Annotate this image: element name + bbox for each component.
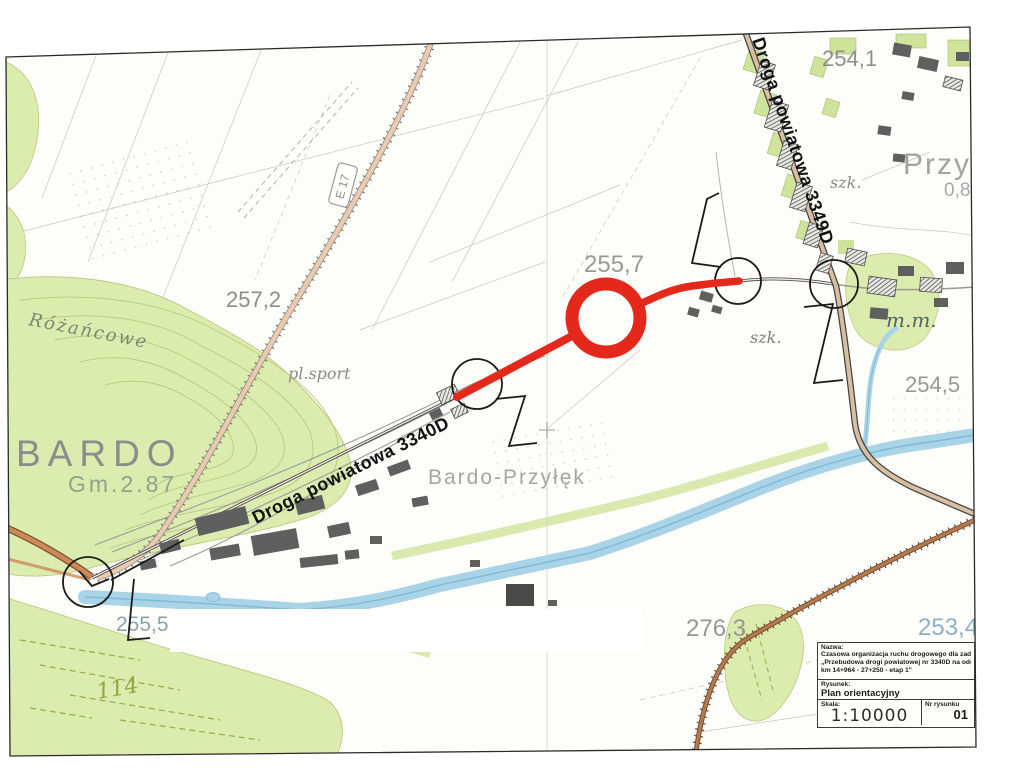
label-elevation-255-7: 255,7 xyxy=(584,251,644,278)
green-mm xyxy=(846,254,939,350)
scale-value: 1:10000 xyxy=(821,706,918,726)
drawing-label: Rysunek: xyxy=(821,681,971,688)
drawing-number-cell: Nr rysunku 01 xyxy=(922,700,974,725)
label-elevation-276-3: 276,3 xyxy=(686,615,746,642)
white-patch xyxy=(170,609,643,652)
name-label: Nazwa: xyxy=(821,644,971,651)
title-block-drawing-section: Rysunek: Plan orientacyjny xyxy=(818,680,974,700)
title-block-name-section: Nazwa: Czasowa organizacja ruchu drogowe… xyxy=(818,643,974,680)
label-elevation-254-1: 254,1 xyxy=(822,46,877,71)
drawing-title: Plan orientacyjny xyxy=(821,688,971,699)
label-mm: m.m. xyxy=(886,308,937,332)
label-bardo-gm: Gm.2.87 xyxy=(68,471,177,497)
label-pl-sport: pl.sport xyxy=(288,364,351,383)
label-elevation-253-4: 253,4 xyxy=(918,614,978,641)
scale-cell: Skala: 1:10000 xyxy=(818,700,922,725)
label-elevation-0-8: 0,8 xyxy=(944,180,970,201)
name-line-2: „Przebudowa drogi powiatowej nr 3340D na… xyxy=(821,659,971,667)
scanned-map-page: 254,1 Przyłęk 0,8 szk. 255,7 szk. m.m. 2… xyxy=(0,0,1024,768)
label-bardo: BARDO xyxy=(16,433,183,474)
drawing-number-value: 01 xyxy=(925,707,971,722)
name-line-3: km 14+964 - 27+250 - etap 1" xyxy=(821,667,971,675)
label-elevation-254-5: 254,5 xyxy=(905,372,960,397)
label-szk-mid: szk. xyxy=(750,328,781,347)
name-line-1: Czasowa organizacja ruchu drogowego dla … xyxy=(821,651,971,659)
label-elevation-257-2: 257,2 xyxy=(226,287,281,312)
title-block: Nazwa: Czasowa organizacja ruchu drogowe… xyxy=(817,642,975,728)
label-elevation-255-5: 255,5 xyxy=(116,613,169,636)
label-bardo-przylek: Bardo-Przyłęk xyxy=(428,466,586,489)
title-block-bottom-row: Skala: 1:10000 Nr rysunku 01 xyxy=(818,700,974,725)
label-szk-top: szk. xyxy=(830,173,861,192)
